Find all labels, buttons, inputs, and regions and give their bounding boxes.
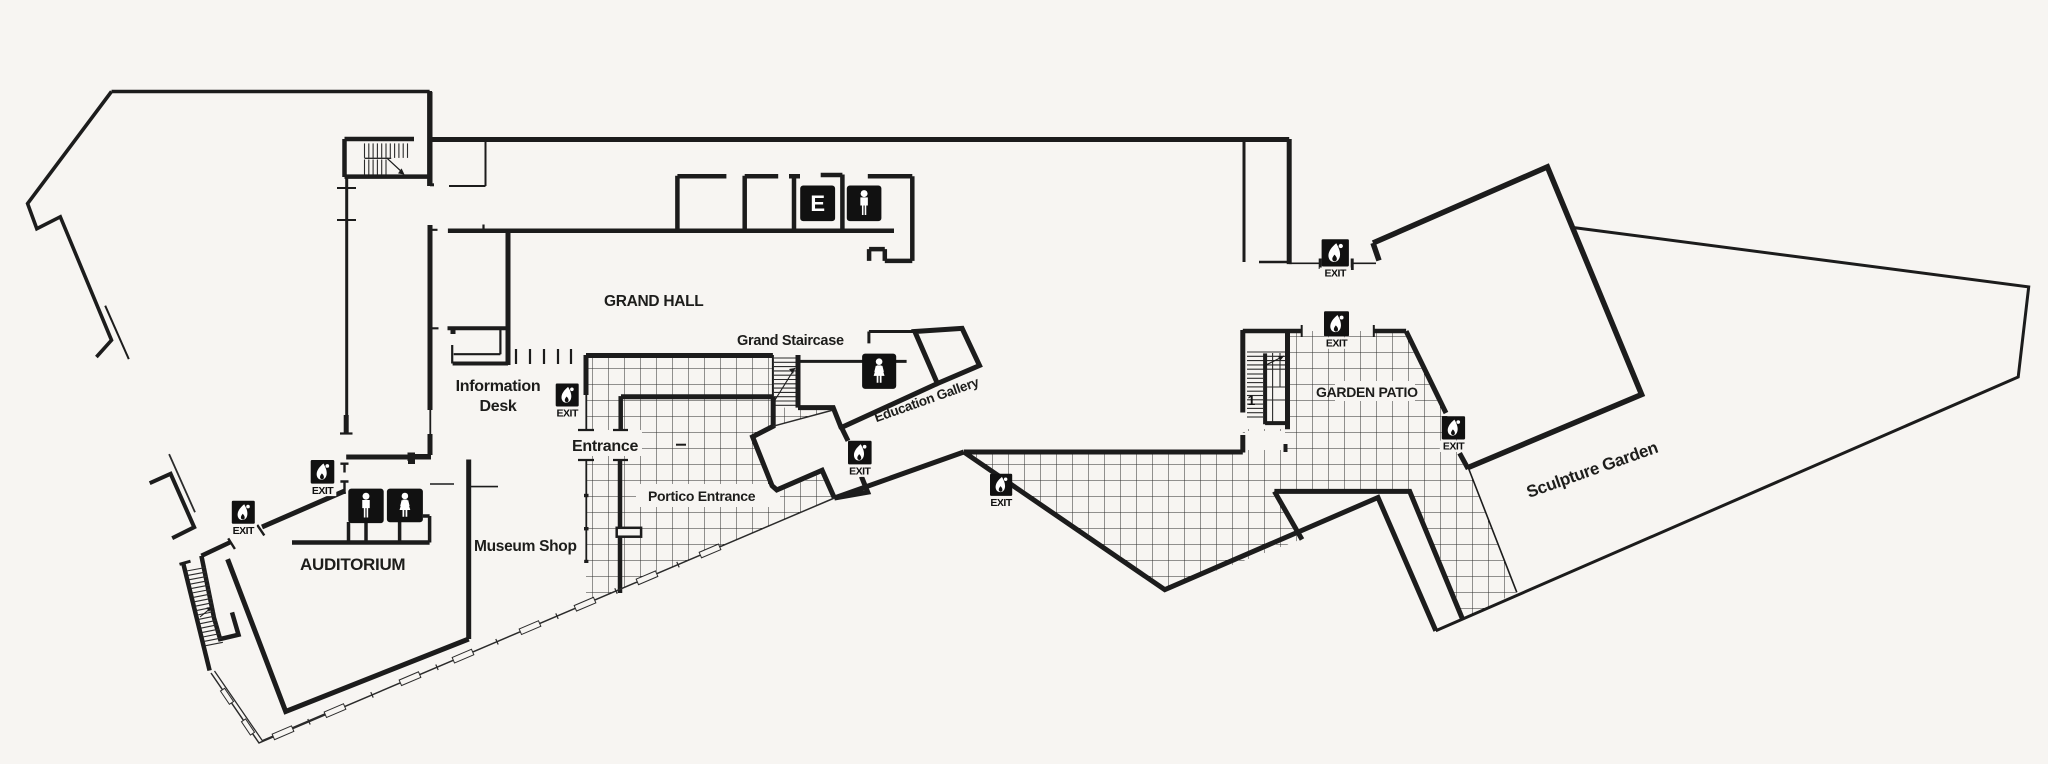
svg-text:EXIT: EXIT [312, 485, 334, 497]
svg-text:EXIT: EXIT [849, 466, 871, 478]
svg-text:Grand Staircase: Grand Staircase [737, 333, 844, 349]
svg-text:E: E [810, 191, 825, 216]
svg-text:EXIT: EXIT [557, 408, 579, 420]
svg-text:GRAND HALL: GRAND HALL [604, 293, 703, 310]
svg-text:GARDEN PATIO: GARDEN PATIO [1316, 384, 1418, 400]
svg-text:Portico Entrance: Portico Entrance [648, 488, 756, 504]
svg-text:EXIT: EXIT [1443, 441, 1465, 453]
svg-text:EXIT: EXIT [990, 497, 1012, 509]
svg-text:EXIT: EXIT [233, 525, 255, 537]
svg-text:Entrance: Entrance [572, 438, 638, 455]
svg-text:1: 1 [1248, 392, 1256, 408]
svg-text:EXIT: EXIT [1325, 268, 1347, 280]
svg-text:Information: Information [456, 378, 541, 395]
svg-text:AUDITORIUM: AUDITORIUM [300, 555, 405, 574]
svg-text:EXIT: EXIT [1326, 338, 1348, 350]
svg-text:Desk: Desk [479, 398, 516, 415]
svg-text:Museum Shop: Museum Shop [474, 538, 577, 555]
